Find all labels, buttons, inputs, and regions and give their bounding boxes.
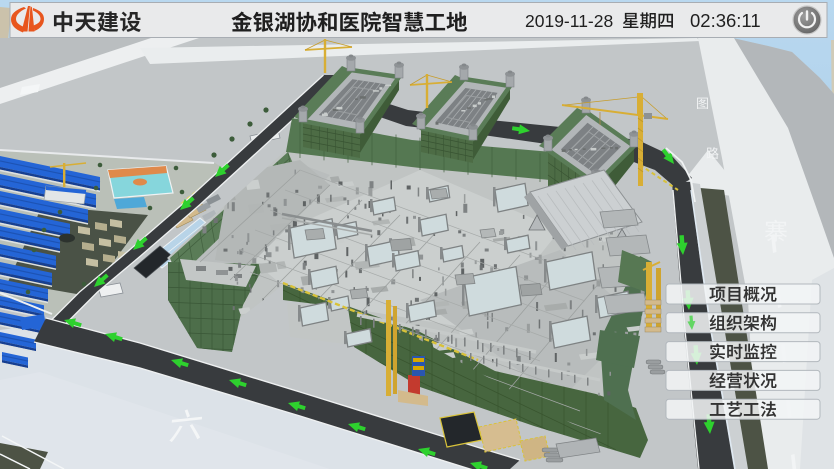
svg-text:02:36:11: 02:36:11 <box>690 10 761 31</box>
svg-text:2019-11-28: 2019-11-28 <box>525 11 613 31</box>
